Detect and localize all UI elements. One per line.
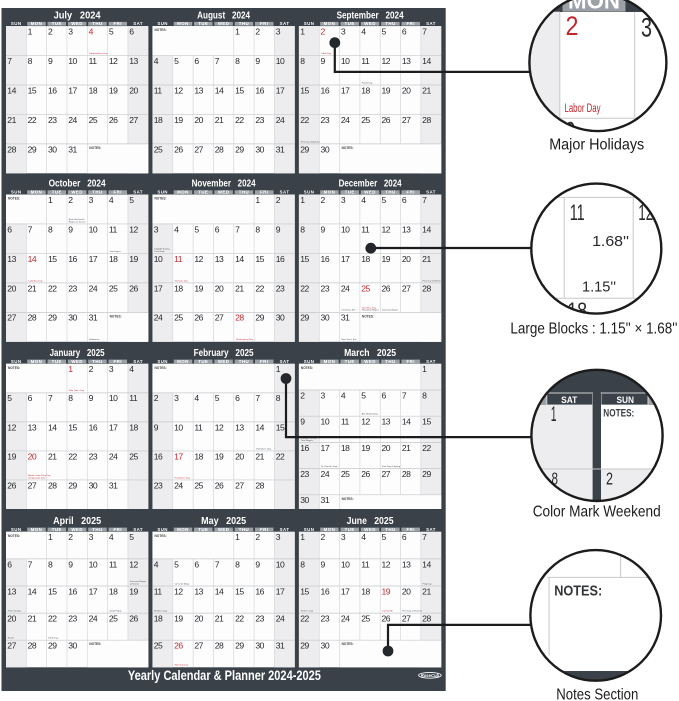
svg-text:WED: WED [71, 527, 83, 532]
svg-text:FRI: FRI [406, 359, 414, 364]
svg-text:13: 13 [402, 224, 411, 234]
svg-text:Thanksgiving Day: Thanksgiving Day [236, 339, 254, 341]
svg-text:13: 13 [194, 586, 203, 596]
svg-text:11: 11 [174, 254, 183, 264]
svg-text:17: 17 [89, 586, 98, 596]
svg-text:2: 2 [606, 469, 613, 489]
svg-text:10: 10 [89, 224, 98, 234]
svg-text:5: 5 [109, 27, 114, 37]
svg-text:14: 14 [422, 224, 431, 234]
svg-text:17: 17 [154, 283, 163, 293]
svg-text:WED: WED [71, 190, 83, 195]
svg-text:Yom Kippur: Yom Kippur [109, 250, 120, 253]
svg-text:SAT: SAT [280, 190, 290, 195]
svg-text:NOTES:: NOTES: [342, 146, 354, 150]
svg-text:SUN: SUN [11, 21, 22, 26]
svg-text:5: 5 [382, 532, 387, 542]
svg-text:13: 13 [402, 56, 411, 66]
svg-text:20: 20 [194, 614, 203, 624]
svg-text:15: 15 [255, 254, 264, 264]
svg-text:27: 27 [402, 115, 411, 125]
svg-text:SUN: SUN [157, 190, 168, 195]
svg-text:3: 3 [89, 532, 94, 542]
svg-text:8: 8 [300, 559, 305, 569]
svg-text:27: 27 [7, 313, 16, 323]
svg-text:1: 1 [28, 27, 33, 37]
svg-text:17: 17 [276, 85, 285, 95]
svg-text:28: 28 [215, 144, 224, 154]
svg-text:17: 17 [341, 254, 350, 264]
svg-text:7: 7 [422, 532, 427, 542]
svg-text:16: 16 [321, 586, 330, 596]
svg-text:6: 6 [7, 224, 12, 234]
svg-text:11: 11 [570, 200, 585, 225]
svg-text:Palm Sunday: Palm Sunday [8, 611, 22, 613]
svg-text:SUN: SUN [616, 395, 634, 405]
svg-text:TUE: TUE [345, 527, 355, 532]
svg-text:1: 1 [68, 364, 73, 374]
svg-text:24: 24 [341, 614, 350, 624]
svg-text:1: 1 [300, 27, 305, 37]
svg-text:FRI: FRI [406, 21, 414, 26]
svg-text:SUN: SUN [11, 190, 22, 195]
svg-text:15: 15 [300, 586, 309, 596]
svg-text:THU: THU [92, 527, 102, 532]
svg-text:22: 22 [235, 115, 244, 125]
svg-text:TUE: TUE [198, 527, 208, 532]
svg-text:4: 4 [361, 27, 366, 37]
svg-text:24: 24 [68, 115, 77, 125]
svg-text:WED: WED [218, 21, 230, 26]
svg-text:SUN: SUN [304, 359, 315, 364]
svg-text:14: 14 [422, 56, 431, 66]
svg-text:18: 18 [361, 254, 370, 264]
svg-text:18: 18 [109, 586, 118, 596]
svg-text:12: 12 [109, 56, 118, 66]
svg-text:21: 21 [255, 451, 264, 461]
svg-text:12: 12 [361, 417, 370, 427]
svg-text:2: 2 [276, 195, 281, 205]
svg-text:21: 21 [422, 254, 431, 264]
svg-text:25: 25 [109, 283, 118, 293]
svg-text:23: 23 [154, 480, 163, 490]
svg-text:24: 24 [276, 614, 285, 624]
svg-text:11: 11 [154, 586, 163, 596]
svg-text:Major Holidays: Major Holidays [549, 137, 644, 154]
svg-text:9: 9 [255, 56, 260, 66]
svg-text:29: 29 [300, 641, 309, 651]
svg-text:24: 24 [321, 469, 330, 479]
svg-text:Cinco de Mayo: Cinco de Mayo [175, 583, 190, 585]
svg-text:THU: THU [239, 21, 249, 26]
svg-text:24: 24 [89, 614, 98, 624]
svg-text:24: 24 [174, 480, 183, 490]
svg-text:28: 28 [422, 283, 431, 293]
svg-text:19: 19 [109, 85, 118, 95]
svg-text:26: 26 [174, 641, 183, 651]
svg-text:31: 31 [109, 480, 118, 490]
svg-text:Earth Day: Earth Day [48, 637, 59, 640]
svg-text:NOTES:: NOTES: [342, 497, 354, 501]
svg-text:4: 4 [109, 195, 114, 205]
svg-text:7: 7 [402, 390, 407, 400]
svg-text:7: 7 [235, 224, 240, 234]
svg-text:3: 3 [174, 393, 179, 403]
svg-text:September 2024: September 2024 [337, 10, 404, 21]
svg-text:12: 12 [382, 559, 391, 569]
svg-text:27: 27 [129, 115, 138, 125]
svg-text:SAT: SAT [426, 527, 436, 532]
svg-text:28: 28 [28, 641, 37, 651]
svg-text:3: 3 [341, 532, 346, 542]
svg-text:29: 29 [300, 144, 309, 154]
svg-text:16: 16 [255, 586, 264, 596]
svg-text:16: 16 [321, 254, 330, 264]
svg-text:TUE: TUE [198, 21, 208, 26]
svg-text:9: 9 [300, 417, 305, 427]
svg-text:SUN: SUN [11, 527, 22, 532]
svg-text:12: 12 [382, 56, 391, 66]
svg-text:14: 14 [235, 254, 244, 264]
svg-text:5: 5 [361, 390, 366, 400]
svg-text:March 2025: March 2025 [344, 348, 396, 359]
svg-text:18: 18 [129, 422, 138, 432]
svg-text:21: 21 [215, 614, 224, 624]
svg-text:25: 25 [174, 313, 183, 323]
svg-text:11: 11 [154, 85, 163, 95]
svg-text:Ash Wednesday: Ash Wednesday [362, 413, 379, 416]
svg-text:29: 29 [300, 313, 309, 323]
svg-text:2: 2 [154, 393, 159, 403]
svg-text:7: 7 [28, 224, 33, 234]
svg-text:31: 31 [276, 641, 285, 651]
svg-text:27: 27 [28, 480, 37, 490]
svg-text:20: 20 [129, 85, 138, 95]
svg-text:25: 25 [89, 115, 98, 125]
svg-text:23: 23 [68, 614, 77, 624]
svg-text:13: 13 [7, 586, 16, 596]
svg-text:27: 27 [194, 144, 203, 154]
svg-text:SAT: SAT [133, 190, 143, 195]
svg-text:8: 8 [300, 56, 305, 66]
svg-text:6: 6 [194, 559, 199, 569]
svg-text:1: 1 [48, 532, 53, 542]
svg-text:Hanukkah Begins: Hanukkah Begins [362, 310, 380, 312]
svg-text:26: 26 [361, 469, 370, 479]
svg-text:NOTES:: NOTES: [342, 642, 354, 646]
svg-text:Christmas Eve: Christmas Eve [341, 309, 356, 312]
svg-text:22: 22 [48, 283, 57, 293]
svg-text:26: 26 [215, 480, 224, 490]
svg-text:10: 10 [341, 224, 350, 234]
svg-text:TUE: TUE [52, 21, 62, 26]
svg-text:10: 10 [68, 56, 77, 66]
svg-text:11: 11 [89, 56, 98, 66]
svg-text:28: 28 [215, 641, 224, 651]
svg-text:19: 19 [194, 283, 203, 293]
svg-text:4: 4 [361, 195, 366, 205]
svg-text:30: 30 [321, 313, 330, 323]
svg-text:Color Mark Weekend: Color Mark Weekend [533, 503, 661, 520]
svg-text:2: 2 [48, 27, 53, 37]
svg-text:20: 20 [402, 586, 411, 596]
svg-text:FRI: FRI [406, 190, 414, 195]
svg-text:THU: THU [385, 359, 395, 364]
svg-text:21: 21 [235, 283, 244, 293]
svg-text:TUE: TUE [52, 190, 62, 195]
svg-text:21: 21 [48, 451, 57, 461]
svg-text:22: 22 [300, 283, 309, 293]
svg-text:2: 2 [68, 532, 73, 542]
svg-text:FRI: FRI [260, 527, 268, 532]
svg-text:8: 8 [276, 393, 281, 403]
svg-text:16: 16 [48, 85, 57, 95]
svg-text:THU: THU [239, 190, 249, 195]
svg-text:WED: WED [364, 359, 376, 364]
svg-text:Mother's Day: Mother's Day [154, 610, 168, 613]
svg-text:28: 28 [28, 313, 37, 323]
svg-text:5: 5 [129, 195, 134, 205]
svg-text:New Year's Day: New Year's Day [69, 389, 85, 392]
svg-text:3: 3 [109, 364, 114, 374]
svg-text:28: 28 [402, 469, 411, 479]
svg-text:Inauguration Day: Inauguration Day [28, 476, 46, 479]
svg-text:Columbus Day: Columbus Day [28, 280, 43, 282]
svg-text:26: 26 [174, 144, 183, 154]
svg-text:9: 9 [68, 224, 73, 234]
svg-text:20: 20 [402, 254, 411, 264]
svg-text:20: 20 [7, 283, 16, 293]
svg-text:19: 19 [129, 586, 138, 596]
svg-text:26: 26 [129, 614, 138, 624]
svg-text:30: 30 [276, 313, 285, 323]
svg-text:SAT: SAT [426, 21, 436, 26]
svg-text:FRI: FRI [114, 359, 122, 364]
svg-text:14: 14 [28, 586, 37, 596]
svg-text:6: 6 [382, 390, 387, 400]
svg-text:1: 1 [255, 195, 260, 205]
svg-text:13: 13 [215, 254, 224, 264]
svg-text:12: 12 [215, 422, 224, 432]
svg-text:11: 11 [341, 417, 350, 427]
svg-text:28: 28 [235, 313, 244, 323]
svg-text:1.15'': 1.15'' [582, 279, 616, 296]
svg-text:19: 19 [382, 254, 391, 264]
svg-text:25: 25 [361, 115, 370, 125]
svg-text:29: 29 [48, 313, 57, 323]
svg-text:October 2024: October 2024 [49, 179, 106, 190]
svg-text:6: 6 [28, 393, 33, 403]
svg-text:3: 3 [276, 532, 281, 542]
svg-text:29: 29 [68, 480, 77, 490]
svg-text:First Day of Winter: First Day of Winter [423, 279, 441, 282]
svg-text:10: 10 [89, 559, 98, 569]
svg-text:16: 16 [321, 85, 330, 95]
svg-text:13: 13 [235, 422, 244, 432]
svg-text:4: 4 [361, 532, 366, 542]
svg-text:SAT: SAT [133, 359, 143, 364]
svg-text:15: 15 [68, 422, 77, 432]
svg-text:22: 22 [422, 443, 431, 453]
svg-text:30: 30 [68, 641, 77, 651]
svg-text:5: 5 [174, 56, 179, 66]
svg-text:November 2024: November 2024 [192, 179, 256, 190]
svg-text:13: 13 [28, 422, 37, 432]
svg-text:26: 26 [382, 115, 391, 125]
svg-text:30: 30 [321, 144, 330, 154]
svg-text:24: 24 [276, 115, 285, 125]
svg-text:16: 16 [68, 254, 77, 264]
svg-text:26: 26 [382, 614, 391, 624]
svg-text:8: 8 [255, 224, 260, 234]
svg-text:10: 10 [276, 559, 285, 569]
svg-text:4: 4 [154, 56, 159, 66]
svg-text:FRI: FRI [114, 21, 122, 26]
svg-text:16: 16 [276, 254, 285, 264]
svg-text:14: 14 [215, 586, 224, 596]
svg-text:Time Ends: Time Ends [154, 251, 165, 253]
svg-text:24: 24 [154, 313, 163, 323]
svg-text:Kwanzaa Begins: Kwanzaa Begins [382, 310, 399, 312]
svg-text:25: 25 [154, 144, 163, 154]
svg-text:28: 28 [422, 115, 431, 125]
svg-text:First Day of Autumn: First Day of Autumn [301, 140, 321, 143]
svg-text:25: 25 [194, 480, 203, 490]
svg-text:12: 12 [194, 254, 203, 264]
svg-text:NOTES:: NOTES: [154, 197, 166, 201]
svg-text:3: 3 [276, 27, 281, 37]
svg-text:6: 6 [402, 195, 407, 205]
svg-text:10: 10 [341, 559, 350, 569]
svg-text:1: 1 [48, 195, 53, 205]
svg-text:30: 30 [321, 641, 330, 651]
svg-text:21: 21 [402, 443, 411, 453]
svg-text:8: 8 [235, 559, 240, 569]
svg-text:MON: MON [324, 359, 336, 364]
svg-text:30: 30 [68, 313, 77, 323]
svg-text:TUE: TUE [345, 190, 355, 195]
svg-text:16: 16 [68, 586, 77, 596]
svg-text:SAT: SAT [426, 190, 436, 195]
svg-text:26: 26 [109, 115, 118, 125]
svg-text:6: 6 [215, 224, 220, 234]
svg-text:7: 7 [48, 393, 53, 403]
svg-text:6: 6 [194, 56, 199, 66]
svg-text:THU: THU [385, 527, 395, 532]
svg-text:22: 22 [68, 451, 77, 461]
svg-text:4: 4 [154, 559, 159, 569]
svg-text:4: 4 [194, 393, 199, 403]
svg-text:23: 23 [68, 283, 77, 293]
svg-text:18: 18 [361, 85, 370, 95]
svg-text:at Sunset: at Sunset [130, 582, 140, 585]
svg-text:NOTES:: NOTES: [8, 534, 20, 538]
svg-text:NOTES:: NOTES: [603, 408, 634, 420]
svg-text:24: 24 [89, 283, 98, 293]
svg-text:4: 4 [89, 27, 94, 37]
svg-text:23: 23 [255, 614, 264, 624]
svg-text:10: 10 [174, 422, 183, 432]
svg-text:3: 3 [89, 195, 94, 205]
svg-text:10: 10 [276, 56, 285, 66]
svg-text:TUE: TUE [52, 359, 62, 364]
svg-text:28: 28 [48, 480, 57, 490]
svg-text:Labor Day: Labor Day [565, 103, 601, 115]
svg-text:Labor Day: Labor Day [321, 52, 332, 55]
svg-text:21: 21 [28, 283, 37, 293]
svg-text:Notes Section: Notes Section [556, 686, 638, 701]
svg-text:29: 29 [235, 641, 244, 651]
svg-text:NOTES:: NOTES: [8, 366, 20, 370]
svg-text:9: 9 [321, 559, 326, 569]
svg-text:6: 6 [402, 532, 407, 542]
svg-text:10: 10 [341, 56, 350, 66]
svg-text:7: 7 [7, 56, 12, 66]
svg-text:19: 19 [382, 586, 391, 596]
svg-text:9: 9 [255, 559, 260, 569]
svg-text:January 2025: January 2025 [50, 348, 105, 359]
svg-text:25: 25 [361, 614, 370, 624]
svg-text:5: 5 [382, 195, 387, 205]
svg-text:26: 26 [129, 283, 138, 293]
svg-text:20: 20 [235, 451, 244, 461]
svg-text:Time Begins: Time Begins [301, 440, 314, 442]
svg-text:16: 16 [300, 443, 309, 453]
svg-text:23: 23 [300, 469, 309, 479]
svg-text:WED: WED [71, 21, 83, 26]
svg-text:12: 12 [174, 85, 183, 95]
svg-text:18: 18 [154, 115, 163, 125]
svg-text:11: 11 [109, 559, 118, 569]
svg-text:20: 20 [215, 283, 224, 293]
svg-text:July 2024: July 2024 [54, 10, 101, 21]
svg-text:MON: MON [324, 21, 336, 26]
svg-text:12: 12 [129, 559, 138, 569]
svg-text:TUE: TUE [198, 190, 208, 195]
svg-text:WED: WED [364, 527, 376, 532]
svg-text:MON: MON [324, 527, 336, 532]
svg-text:9: 9 [154, 422, 159, 432]
svg-text:14: 14 [255, 422, 264, 432]
svg-text:29: 29 [28, 144, 37, 154]
svg-text:27: 27 [7, 641, 16, 651]
svg-text:WED: WED [218, 527, 230, 532]
svg-text:30: 30 [255, 641, 264, 651]
svg-text:18: 18 [361, 586, 370, 596]
svg-text:4: 4 [174, 224, 179, 234]
svg-text:31: 31 [68, 144, 77, 154]
svg-text:SAT: SAT [426, 359, 436, 364]
svg-text:24: 24 [341, 115, 350, 125]
svg-text:17: 17 [109, 422, 118, 432]
svg-text:SUN: SUN [157, 21, 168, 26]
svg-text:1: 1 [422, 364, 427, 374]
svg-text:18: 18 [341, 443, 350, 453]
svg-text:SAT: SAT [280, 527, 290, 532]
svg-text:FRI: FRI [260, 359, 268, 364]
svg-text:29: 29 [255, 313, 264, 323]
svg-text:SUN: SUN [304, 527, 315, 532]
svg-text:9: 9 [321, 56, 326, 66]
svg-text:19: 19 [215, 451, 224, 461]
svg-text:23: 23 [48, 115, 57, 125]
svg-text:15: 15 [48, 254, 57, 264]
svg-text:11: 11 [194, 422, 203, 432]
svg-text:December 2024: December 2024 [339, 179, 402, 190]
svg-text:31: 31 [89, 313, 98, 323]
svg-text:17: 17 [68, 85, 77, 95]
svg-text:8: 8 [48, 224, 53, 234]
